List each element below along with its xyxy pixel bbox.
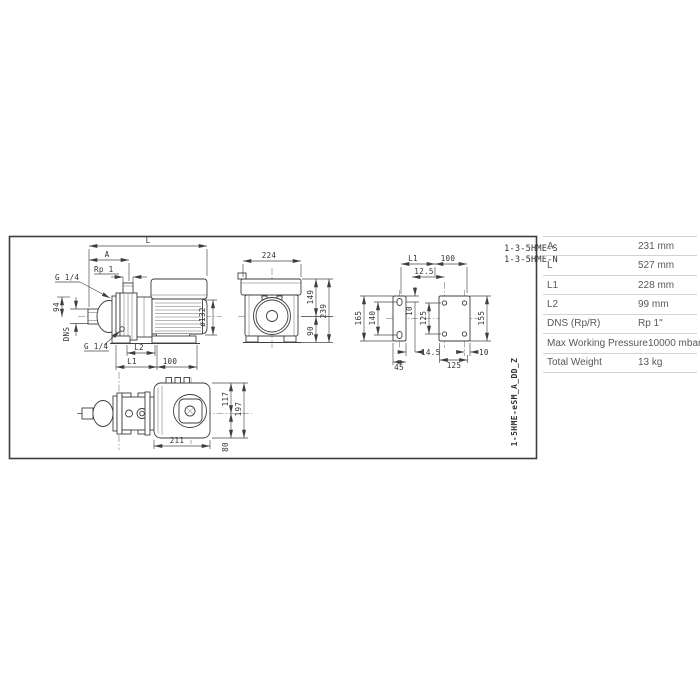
drawing-code-vertical: 1-5HME-eSM_A_DD_Z (510, 358, 519, 447)
spec-value: Rp 1" (638, 318, 663, 329)
dim-label-14-5: 14.5 (421, 348, 441, 357)
footprint-views (386, 282, 478, 356)
dim-label-L: L (146, 236, 151, 245)
dim-label-plate-L1: L1 (408, 254, 418, 263)
dim-label-o132: ø132 (198, 307, 207, 327)
dim-label-10-bottom: 10 (479, 348, 489, 357)
page: { "drawing": { "models": { "top": "1-3-5… (0, 0, 700, 700)
dim-label-165: 165 (354, 311, 363, 326)
dim-label-80: 80 (221, 442, 230, 452)
dim-label-117: 117 (221, 392, 230, 407)
spec-value: 228 mm (638, 280, 674, 291)
dim-label-rp1: Rp 1 (94, 265, 114, 274)
dim-label-g14-bottom: G 1/4 (84, 342, 108, 351)
footprint-dimensions: L1 100 12.5 165 140 10 125 155 14.5 45 (354, 254, 491, 372)
dim-label-12-5: 12.5 (414, 267, 434, 276)
spec-label: L2 (543, 299, 638, 310)
dim-label-plate-100: 100 (441, 254, 456, 263)
spec-label: L1 (543, 280, 638, 291)
dim-label-A: A (105, 250, 110, 259)
dim-label-g14-top: G 1/4 (55, 273, 79, 282)
table-row: L2 99 mm (543, 294, 697, 313)
spec-value: 99 mm (638, 299, 669, 310)
spec-label: Total Weight (543, 357, 638, 368)
dim-label-211: 211 (170, 436, 185, 445)
spec-value: 13 kg (638, 357, 662, 368)
dim-label-155: 155 (477, 311, 486, 326)
dim-label-140: 140 (368, 311, 377, 326)
spec-label: A (543, 241, 638, 252)
table-row: L 527 mm (543, 255, 697, 274)
table-row: DNS (Rp/R) Rp 1" (543, 314, 697, 333)
table-row: Total Weight 13 kg (543, 353, 697, 373)
dim-label-197: 197 (234, 402, 243, 417)
dim-label-dns: DNS (62, 327, 71, 342)
spec-label: Max Working Pressure (543, 338, 648, 349)
dim-label-L1: L1 (127, 357, 137, 366)
dim-label-224: 224 (262, 251, 277, 260)
dim-label-90: 90 (306, 326, 315, 336)
spec-label: L (543, 260, 638, 271)
dim-label-100: 100 (163, 357, 178, 366)
table-row: A 231 mm (543, 236, 697, 255)
dim-label-125-v: 125 (419, 311, 428, 326)
dim-label-94: 94 (52, 302, 61, 312)
dim-label-L2: L2 (134, 343, 144, 352)
spec-value: 10000 mbar (648, 338, 700, 349)
table-row: L1 228 mm (543, 275, 697, 294)
footprint-square-plate (439, 296, 470, 341)
dim-label-149: 149 (306, 290, 315, 305)
spec-value: 231 mm (638, 241, 674, 252)
dim-label-125-bottom: 125 (447, 361, 462, 370)
spec-label: DNS (Rp/R) (543, 318, 638, 329)
dim-label-239: 239 (319, 304, 328, 319)
table-row: Max Working Pressure 10000 mbar (543, 333, 697, 352)
dim-label-45: 45 (394, 363, 404, 372)
dim-label-10-top: 10 (405, 306, 414, 316)
spec-value: 527 mm (638, 260, 674, 271)
spec-table: A 231 mm L 527 mm L1 228 mm L2 99 mm DNS… (543, 236, 697, 373)
